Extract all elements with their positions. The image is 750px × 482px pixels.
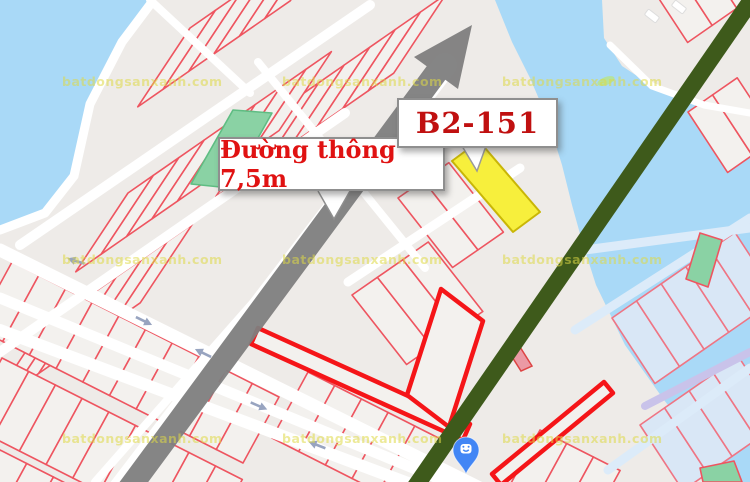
lot-id-callout[interactable]: B2-151 xyxy=(397,98,558,148)
map-canvas[interactable] xyxy=(0,0,750,482)
map-viewport[interactable]: batdongsanxanh.combatdongsanxanh.combatd… xyxy=(0,0,750,482)
lot-id-label: B2-151 xyxy=(416,106,539,140)
